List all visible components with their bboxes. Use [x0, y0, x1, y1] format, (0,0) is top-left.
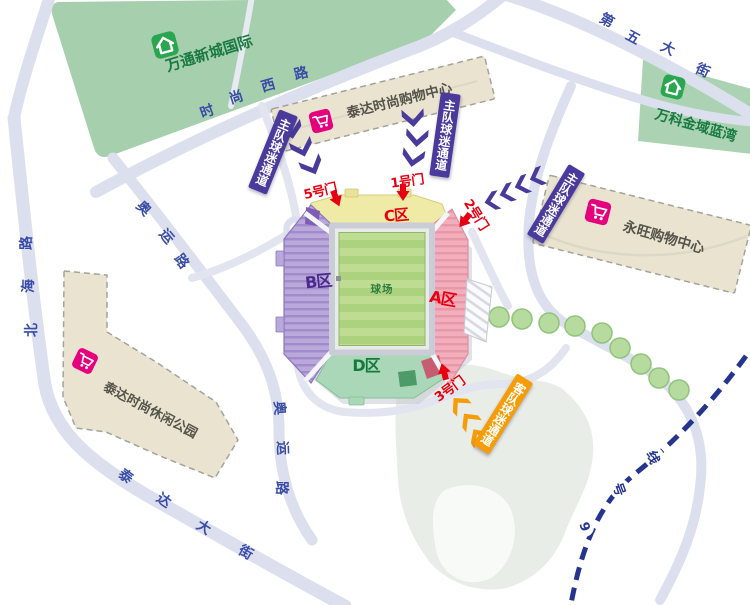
- stadium-zone-d-label: D区: [352, 352, 379, 376]
- map-graphics: [0, 0, 750, 605]
- metro-line-9: [571, 356, 746, 604]
- road-beihai-char: 路: [16, 236, 36, 250]
- stadium-pitch-label: 球场: [371, 282, 394, 297]
- road-beihai-char: 海: [18, 279, 38, 293]
- stadium-zone-a-label: A区: [428, 283, 458, 311]
- stadium-zone-c-label: C区: [383, 203, 409, 226]
- road-beihai-char: 北: [21, 323, 41, 337]
- stadium-area-map: 时 尚 西 路 第 五 大 街 路 海 北 奥 运 路 奥 运 路 泰 达 大 …: [0, 0, 750, 605]
- stadium-zone-b-label: B区: [304, 267, 333, 294]
- stadium-east-ramp: [464, 279, 492, 342]
- road-aoyun-s-char: 运: [273, 441, 293, 456]
- road-aoyun-s-char: 奥: [270, 400, 291, 415]
- road-aoyun-s-char: 路: [272, 481, 292, 495]
